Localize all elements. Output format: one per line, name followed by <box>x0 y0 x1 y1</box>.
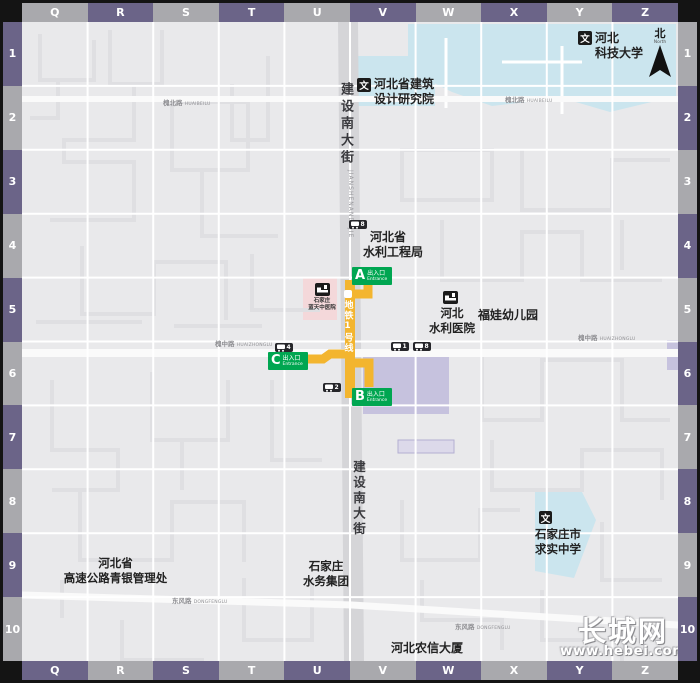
hospital-glyph <box>317 285 328 294</box>
street-label-huaibeilu-east: 槐北路 HUAIBEILU <box>505 94 552 104</box>
street-en: HUAIZHONGLU <box>237 343 273 348</box>
bus-route-number: 1 <box>403 342 407 351</box>
poi-line: 科技大学 <box>595 46 643 61</box>
grid-cell: X <box>481 661 547 680</box>
street-en: HUAIZHONGLU <box>600 337 636 342</box>
street-en: HUAIBEILU <box>527 99 553 104</box>
grid-numbers-right: 12345678910 <box>678 22 697 661</box>
entrance-letter: C <box>271 352 281 370</box>
bus-route-number: 8 <box>425 342 429 351</box>
grid-cell: Q <box>22 3 88 22</box>
culture-glyph: 文 <box>359 78 369 92</box>
grid-cell: 9 <box>3 533 22 597</box>
road-label-jianshenandajie-top: 建设南大街 <box>336 82 355 167</box>
entrance-label-en: Entrance <box>367 398 387 403</box>
poi-line: 石家庄 <box>291 559 361 574</box>
entrance-letter: B <box>355 388 365 406</box>
poi-line: 水务集团 <box>291 574 361 589</box>
grid-cell: Y <box>547 661 613 680</box>
grid-cell: R <box>88 3 154 22</box>
bus-stop-icon: 8 <box>349 220 367 229</box>
bus-stop-icon: 1 <box>391 342 409 351</box>
hospital-glyph <box>445 293 456 302</box>
metro-entrance-a: A 出入口Entrance <box>352 267 392 285</box>
poi-line: 河北 <box>421 306 483 321</box>
grid-cell: 8 <box>3 469 22 533</box>
grid-cell: V <box>350 3 416 22</box>
north-label-cn: 北 <box>655 28 666 40</box>
poi-line: 河北 <box>595 31 643 46</box>
entrance-label-cn: 出入口 <box>283 355 303 362</box>
street-cn: 槐中路 <box>215 340 235 348</box>
grid-cell: 6 <box>678 342 697 406</box>
bus-route-number: 4 <box>287 343 291 352</box>
poi-kindergarten: 福娃幼儿园 <box>478 308 538 323</box>
grid-cell: 1 <box>3 22 22 86</box>
bus-route-number: 2 <box>335 383 339 392</box>
bus-icon <box>415 343 423 351</box>
street-en: DONGFENGLU <box>194 600 228 605</box>
street-cn: 东风路 <box>172 597 192 605</box>
building-strip-purple <box>398 440 454 453</box>
grid-cell: 9 <box>678 533 697 597</box>
poi-water-bureau: 河北省 水利工程局 <box>363 230 423 260</box>
street-en: HUAIBEILU <box>185 102 211 107</box>
entrance-letter: A <box>355 267 365 285</box>
poi-line: 设计研究院 <box>374 92 434 107</box>
hospital-icon <box>443 291 458 304</box>
culture-icon: 文 <box>578 31 592 45</box>
grid-cell: 1 <box>678 22 697 86</box>
entrance-label-cn: 出入口 <box>367 391 387 398</box>
poi-water-hospital: 河北 水利医院 <box>421 306 483 336</box>
bus-stop-icon: 2 <box>323 383 341 392</box>
entrance-label-cn: 出入口 <box>367 270 387 277</box>
grid-letters-top: QRSTUVWXYZ <box>22 3 678 22</box>
poi-expressway-admin: 河北省 高速公路青银管理处 <box>48 556 183 586</box>
grid-cell: U <box>284 661 350 680</box>
map-canvas: 北 North 文 河北 科技大学 文 河北省建筑 设计研究院 建设南大街 JI… <box>22 22 678 661</box>
entrance-label-en: Entrance <box>283 362 303 367</box>
map-page: QRSTUVWXYZ QRSTUVWXYZ 12345678910 123456… <box>0 0 700 683</box>
frame-corner <box>678 661 697 680</box>
grid-cell: X <box>481 3 547 22</box>
bus-icon <box>277 344 285 352</box>
north-arrow-icon <box>647 45 673 79</box>
hospital-icon <box>315 283 330 296</box>
bus-route-number: 8 <box>361 220 365 229</box>
grid-cell: 3 <box>3 150 22 214</box>
poi-qiushi-school: 石家庄市 求实中学 <box>535 527 581 557</box>
street-cn: 槐北路 <box>505 96 525 104</box>
north-compass: 北 North <box>642 28 678 79</box>
poi-design-institute: 河北省建筑 设计研究院 <box>374 77 434 107</box>
grid-cell: T <box>219 661 285 680</box>
metro-line-name: 地铁1号线 <box>342 300 355 354</box>
grid-numbers-left: 12345678910 <box>3 22 22 661</box>
metro-line-label: 地铁1号线 <box>340 290 356 354</box>
street-cn: 东风路 <box>455 623 475 631</box>
grid-letters-bottom: QRSTUVWXYZ <box>22 661 678 680</box>
poi-line: 福娃幼儿园 <box>478 308 538 323</box>
watermark-url: www.hebei.com.cn <box>560 643 678 659</box>
culture-icon: 文 <box>357 78 371 92</box>
poi-line: 求实中学 <box>535 542 581 557</box>
poi-line: 水利工程局 <box>363 245 423 260</box>
bus-stop-icon: 4 <box>275 343 293 352</box>
frame-corner <box>678 3 697 22</box>
poi-water-group: 石家庄 水务集团 <box>291 559 361 589</box>
grid-cell: R <box>88 661 154 680</box>
metro-entrance-c: C 出入口Entrance <box>268 352 308 370</box>
poi-university: 河北 科技大学 <box>595 31 643 61</box>
street-label-huaizhonglu-west: 槐中路 HUAIZHONGLU <box>215 338 273 348</box>
street-label-dongfenglu-east: 东风路 DONGFENGLU <box>455 621 511 631</box>
grid-cell: 10 <box>678 597 697 661</box>
entrance-label-en: Entrance <box>367 277 387 282</box>
frame-corner <box>3 3 22 22</box>
grid-cell: W <box>416 3 482 22</box>
grid-cell: Z <box>612 3 678 22</box>
grid-cell: 4 <box>3 214 22 278</box>
street-en: DONGFENGLU <box>477 626 511 631</box>
road-label-jianshenandajie-bottom: 建设南大街 <box>349 460 368 538</box>
street-label-dongfenglu-west: 东风路 DONGFENGLU <box>172 595 228 605</box>
frame-corner <box>3 661 22 680</box>
grid-cell: 2 <box>3 86 22 150</box>
grid-cell: 3 <box>678 150 697 214</box>
grid-cell: V <box>350 661 416 680</box>
bus-stop-icon: 8 <box>413 342 431 351</box>
grid-cell: Q <box>22 661 88 680</box>
street-label-huaizhonglu-east: 槐中路 HUAIZHONGLU <box>578 332 636 342</box>
metro-entrance-b: B 出入口Entrance <box>352 388 392 406</box>
grid-cell: 6 <box>3 342 22 406</box>
grid-cell: 2 <box>678 86 697 150</box>
poi-line: 河北省 <box>363 230 423 245</box>
culture-icon: 文 <box>539 511 552 524</box>
grid-cell: Y <box>547 3 613 22</box>
street-label-huaibeilu-west: 槐北路 HUAIBEILU <box>163 97 210 107</box>
grid-cell: S <box>153 3 219 22</box>
street-cn: 槐中路 <box>578 334 598 342</box>
poi-line: 水利医院 <box>421 321 483 336</box>
grid-cell: S <box>153 661 219 680</box>
grid-cell: 8 <box>678 469 697 533</box>
grid-cell: 10 <box>3 597 22 661</box>
grid-cell: W <box>416 661 482 680</box>
poi-line: 河北省建筑 <box>374 77 434 92</box>
bus-icon <box>351 221 359 229</box>
grid-cell: Z <box>612 661 678 680</box>
poi-line: 河北省 <box>48 556 183 571</box>
culture-glyph: 文 <box>580 31 590 45</box>
culture-glyph: 文 <box>541 511 551 525</box>
grid-cell: 5 <box>678 278 697 342</box>
poi-line: 高速公路青银管理处 <box>48 571 183 586</box>
bus-icon <box>325 384 333 392</box>
metro-logo-icon <box>344 290 352 298</box>
grid-cell: T <box>219 3 285 22</box>
grid-cell: 7 <box>678 405 697 469</box>
poi-rural-credit: 河北农信大厦 <box>391 641 463 656</box>
poi-line: 河北农信大厦 <box>391 641 463 656</box>
grid-cell: 7 <box>3 405 22 469</box>
street-cn: 槐北路 <box>163 99 183 107</box>
poi-line: 石家庄市 <box>535 527 581 542</box>
bus-icon <box>393 343 401 351</box>
grid-cell: U <box>284 3 350 22</box>
grid-cell: 4 <box>678 214 697 278</box>
grid-cell: 5 <box>3 278 22 342</box>
